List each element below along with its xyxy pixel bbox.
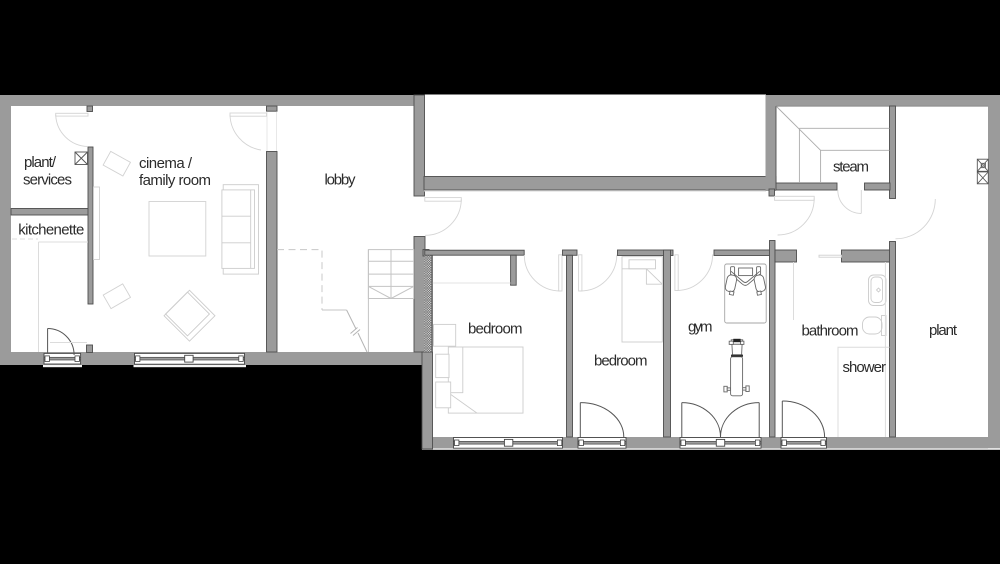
svg-text:bathroom: bathroom (802, 322, 859, 339)
svg-text:lobby: lobby (325, 171, 357, 188)
svg-text:cinema /: cinema / (139, 155, 193, 172)
svg-text:bedroom: bedroom (468, 321, 523, 338)
svg-text:shower: shower (843, 359, 887, 376)
svg-text:plant/: plant/ (24, 154, 57, 171)
svg-text:steam: steam (833, 159, 869, 176)
svg-text:plant: plant (929, 322, 958, 339)
svg-text:services: services (23, 172, 72, 189)
svg-text:family room: family room (139, 172, 211, 189)
svg-text:kitchenette: kitchenette (18, 221, 84, 238)
svg-text:gym: gym (688, 319, 713, 336)
svg-text:bedroom: bedroom (594, 353, 648, 370)
